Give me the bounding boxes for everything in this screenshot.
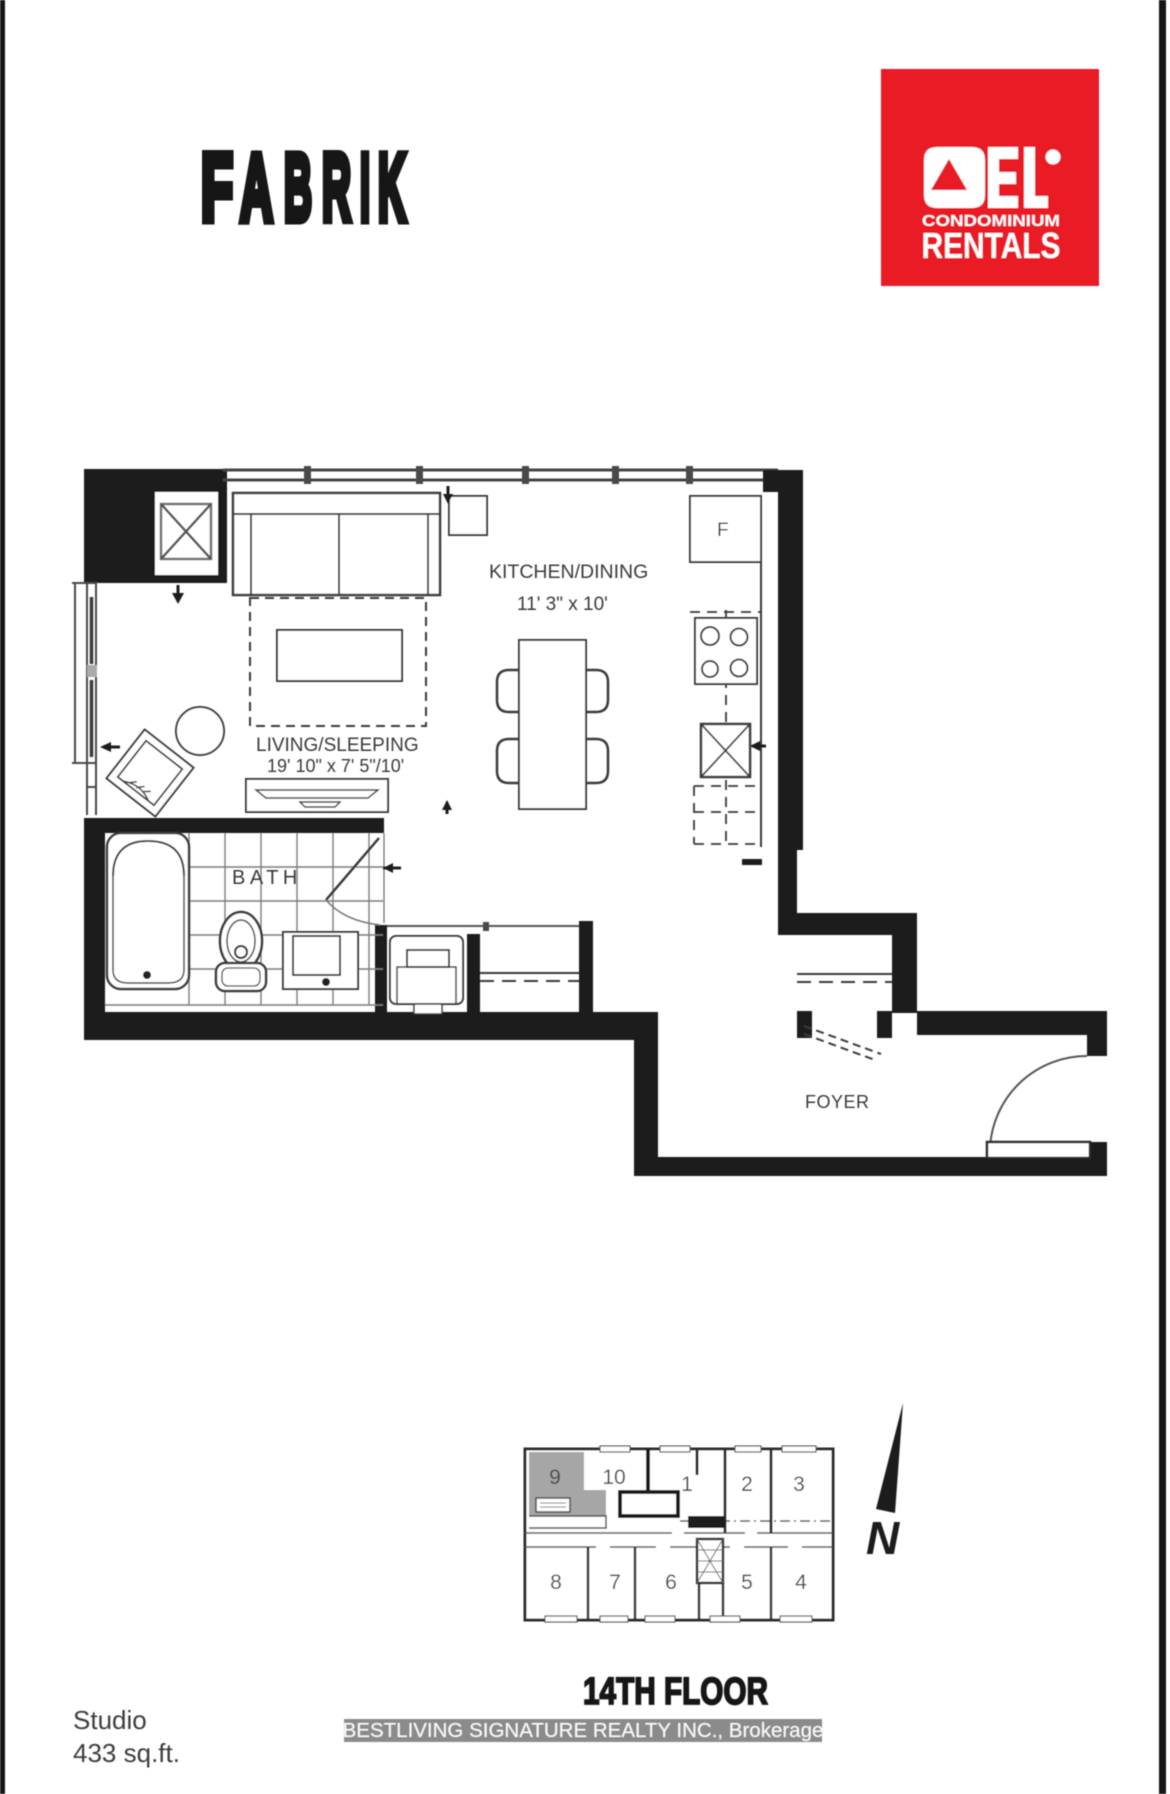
svg-text:19' 10" x 7' 5"/10': 19' 10" x 7' 5"/10': [267, 756, 404, 776]
svg-text:F: F: [201, 135, 233, 241]
svg-text:9: 9: [549, 1466, 561, 1489]
svg-text:14TH FLOOR: 14TH FLOOR: [583, 1671, 768, 1713]
svg-text:BATH: BATH: [232, 867, 302, 889]
svg-text:F: F: [717, 520, 729, 541]
svg-text:A: A: [240, 135, 273, 241]
svg-text:LIVING/SLEEPING: LIVING/SLEEPING: [256, 735, 419, 756]
svg-text:R: R: [322, 135, 351, 241]
svg-text:FOYER: FOYER: [805, 1092, 870, 1112]
svg-text:5: 5: [741, 1571, 753, 1594]
svg-text:I: I: [360, 135, 370, 241]
svg-text:10: 10: [602, 1466, 625, 1489]
svg-text:7: 7: [609, 1571, 621, 1594]
svg-text:K: K: [378, 135, 406, 241]
svg-text:6: 6: [665, 1571, 677, 1594]
svg-text:N: N: [866, 1512, 900, 1564]
svg-text:2: 2: [741, 1473, 753, 1496]
svg-text:Studio: Studio: [73, 1705, 147, 1735]
svg-text:8: 8: [550, 1571, 562, 1594]
svg-text:4: 4: [795, 1571, 807, 1594]
svg-text:BESTLIVING SIGNATURE REALTY IN: BESTLIVING SIGNATURE REALTY INC., Broker…: [343, 1719, 824, 1742]
svg-text:3: 3: [793, 1473, 805, 1496]
svg-text:RENTALS: RENTALS: [922, 225, 1061, 266]
svg-text:B: B: [284, 135, 312, 241]
svg-text:433 sq.ft.: 433 sq.ft.: [73, 1738, 180, 1768]
svg-text:KITCHEN/DINING: KITCHEN/DINING: [489, 561, 648, 583]
svg-text:11' 3" x 10': 11' 3" x 10': [517, 594, 608, 615]
svg-text:1: 1: [681, 1473, 693, 1496]
